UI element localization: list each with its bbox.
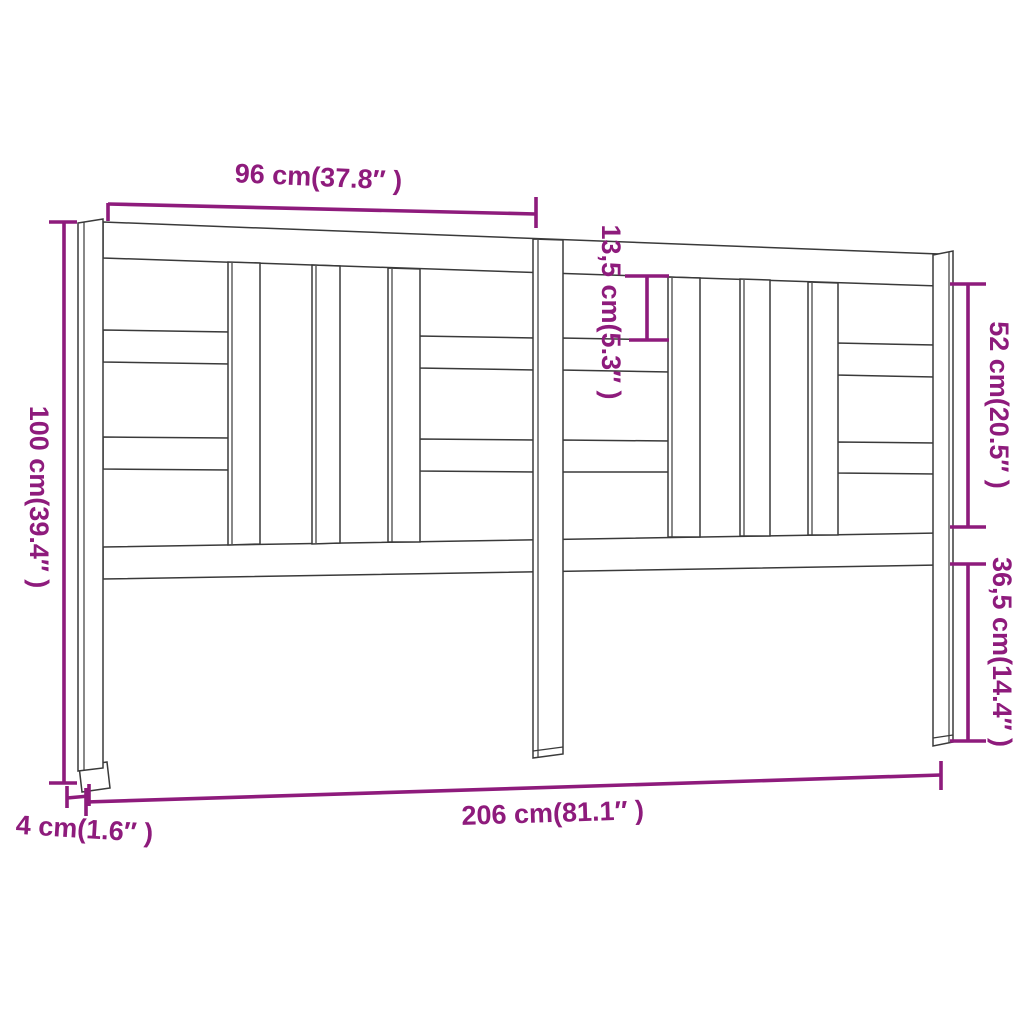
label-lower-height: 36,5 cm(14.4″ ) xyxy=(987,557,1017,747)
headboard-dimension-diagram: 96 cm(37.8″ ) 100 cm(39.4″ ) 13,5 cm(5.3… xyxy=(0,0,1024,1024)
label-leg-thickness: 4 cm(1.6″ ) xyxy=(15,810,154,848)
label-total-height: 100 cm(39.4″ ) xyxy=(24,406,54,589)
dimension-line-upper-height xyxy=(950,284,986,527)
dimension-line-section-width xyxy=(108,197,536,228)
rung xyxy=(103,330,230,364)
dimension-line-lower-height xyxy=(950,564,986,741)
headboard-drawing xyxy=(78,219,953,792)
rung xyxy=(418,336,535,370)
slat xyxy=(668,277,700,537)
rung xyxy=(836,442,935,474)
figure: 96 cm(37.8″ ) 100 cm(39.4″ ) 13,5 cm(5.3… xyxy=(0,0,1024,1024)
rung xyxy=(561,440,670,472)
right-leg xyxy=(933,251,953,746)
label-upper-height: 52 cm(20.5″ ) xyxy=(984,321,1014,489)
rung xyxy=(836,343,935,377)
slat xyxy=(388,268,420,542)
left-leg xyxy=(78,219,103,771)
rung xyxy=(103,437,230,470)
label-opening-height: 13,5 cm(5.3″ ) xyxy=(596,224,626,399)
slat xyxy=(228,262,260,545)
dimension-line-opening-height xyxy=(625,276,669,340)
rung xyxy=(418,439,535,472)
dimension-lines xyxy=(49,197,986,816)
label-section-width: 96 cm(37.8″ ) xyxy=(234,158,403,196)
label-total-width: 206 cm(81.1″ ) xyxy=(461,795,644,831)
